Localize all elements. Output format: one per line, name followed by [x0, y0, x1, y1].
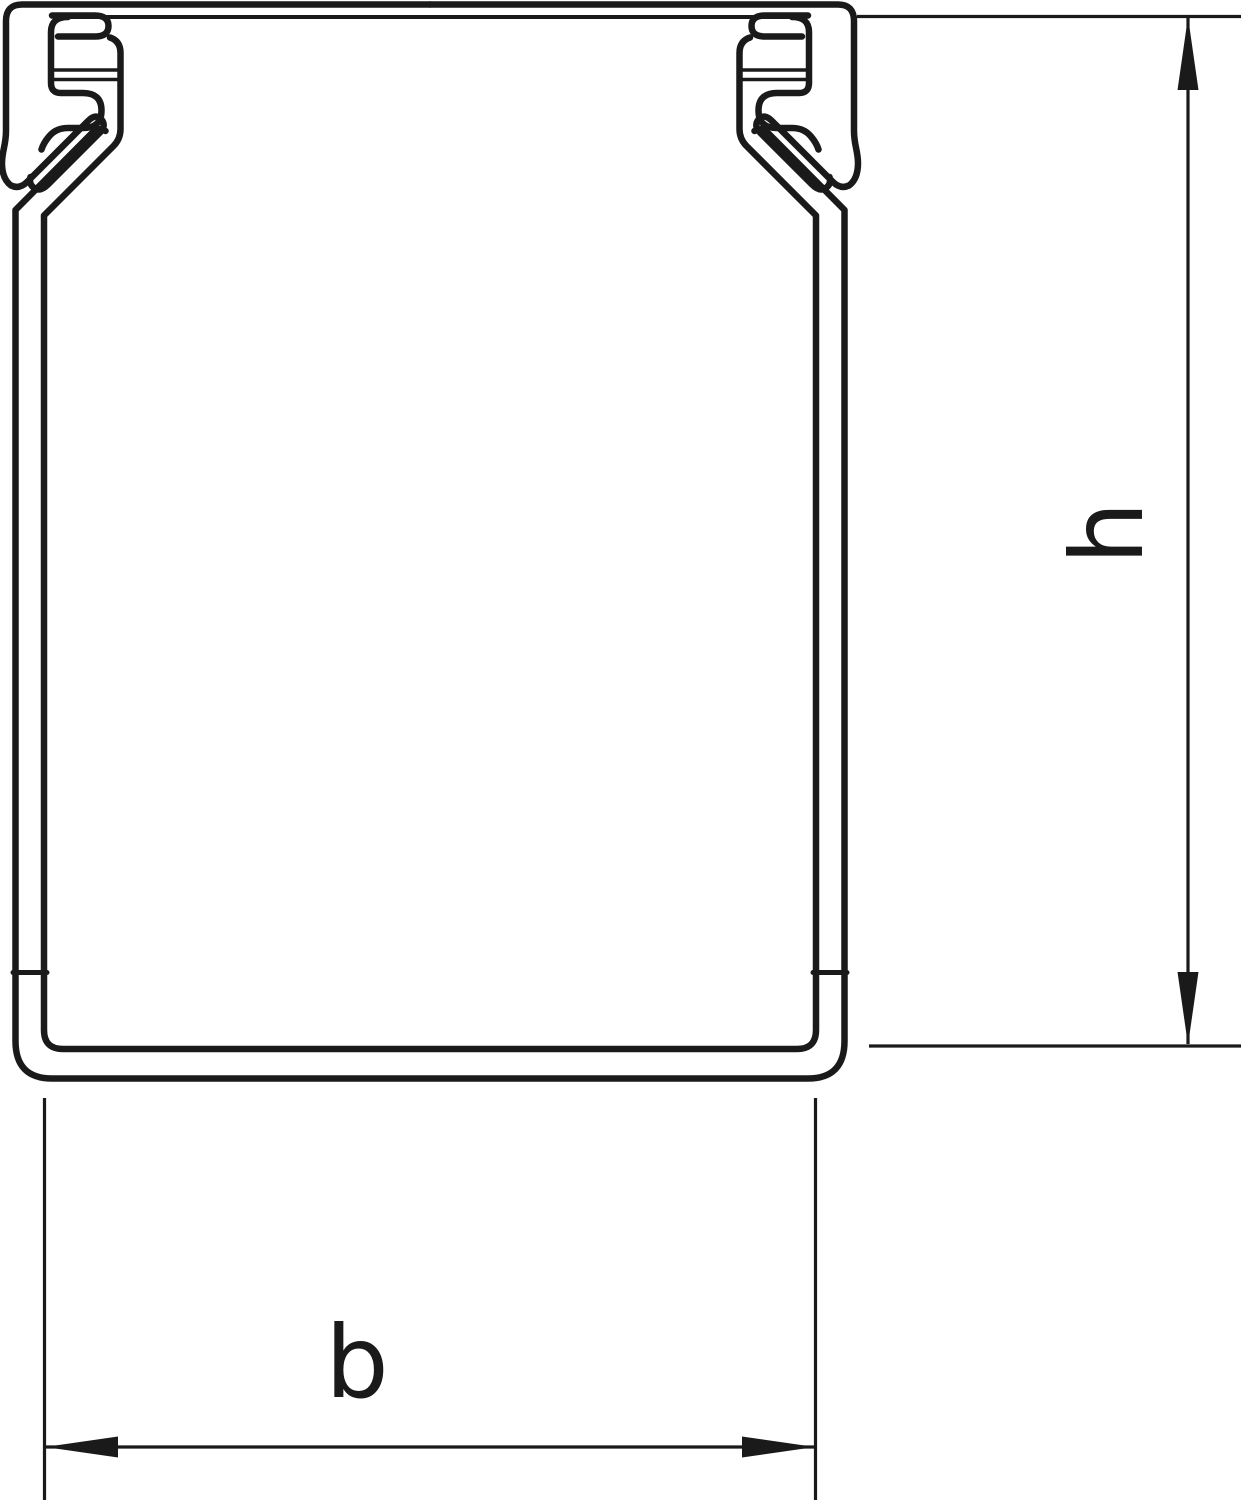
technical-drawing-canvas: h b — [0, 0, 1241, 1500]
profile-inner-body — [44, 38, 816, 1050]
arrow-left-icon — [45, 1437, 118, 1458]
height-dimension-label: h — [1049, 501, 1166, 564]
dimension-arrowheads — [45, 17, 1199, 1458]
dimension-lines — [45, 17, 1241, 1500]
width-dimension-label: b — [325, 1304, 388, 1421]
duct-profile — [2, 5, 858, 1079]
arrow-up-icon — [1178, 17, 1199, 90]
arrow-down-icon — [1178, 972, 1199, 1045]
arrow-right-icon — [742, 1437, 815, 1458]
duct-cross-section-drawing: h b — [0, 0, 1241, 1500]
profile-outer-body — [16, 129, 845, 1078]
